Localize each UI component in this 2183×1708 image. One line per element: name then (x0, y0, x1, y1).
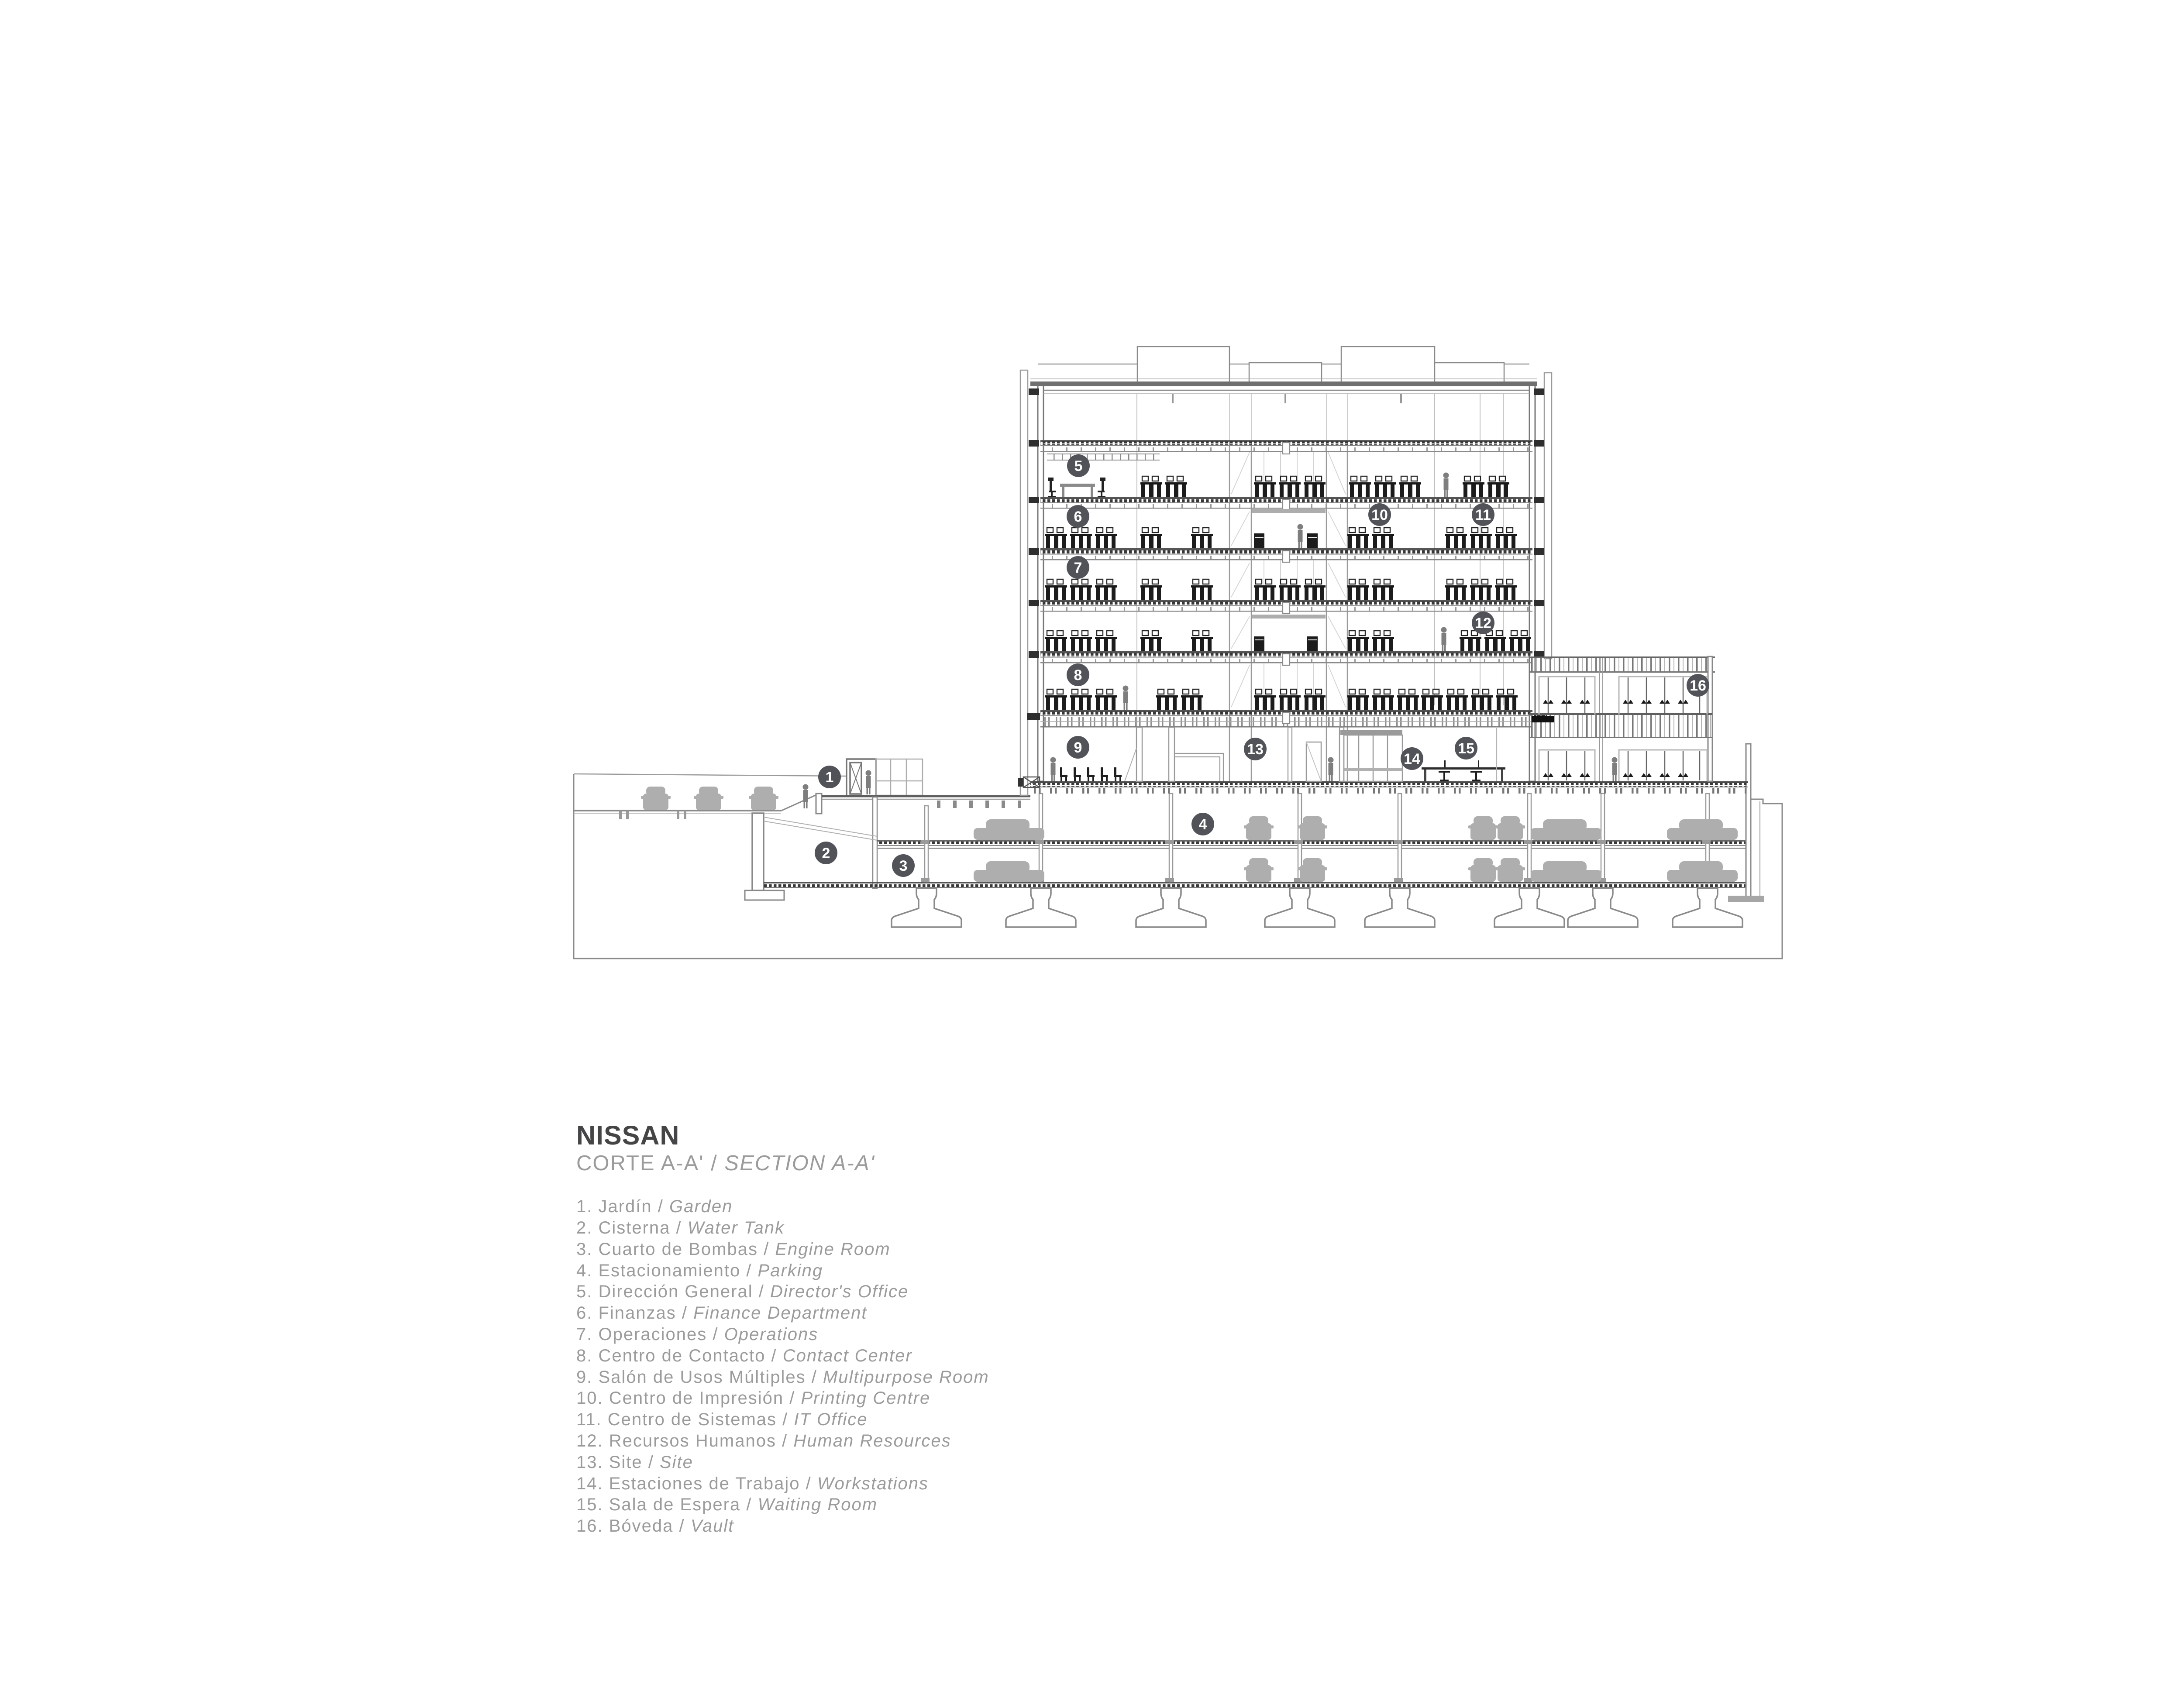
svg-text:4. Estacionamiento / Parking: 4. Estacionamiento / Parking (576, 1261, 823, 1280)
svg-text:11: 11 (1475, 507, 1491, 523)
svg-text:5. Dirección General / Directo: 5. Dirección General / Director's Office (576, 1282, 909, 1301)
svg-text:13: 13 (1247, 741, 1264, 758)
svg-text:7: 7 (1074, 560, 1082, 576)
svg-text:8: 8 (1074, 667, 1082, 684)
svg-text:12: 12 (1475, 615, 1491, 632)
svg-text:13. Site / Site: 13. Site / Site (576, 1453, 693, 1472)
svg-text:6: 6 (1074, 509, 1082, 525)
svg-text:4: 4 (1199, 816, 1207, 833)
svg-text:12. Recursos Humanos / Human R: 12. Recursos Humanos / Human Resources (576, 1431, 951, 1450)
svg-text:NISSAN: NISSAN (576, 1120, 679, 1150)
svg-text:2. Cisterna / Water Tank: 2. Cisterna / Water Tank (576, 1218, 785, 1237)
svg-text:15. Sala de Espera / Waiting R: 15. Sala de Espera / Waiting Room (576, 1495, 878, 1514)
svg-text:3. Cuarto de Bombas / Engine R: 3. Cuarto de Bombas / Engine Room (576, 1240, 891, 1259)
svg-text:9. Salón de Usos Múltiples / M: 9. Salón de Usos Múltiples / Multipurpos… (576, 1368, 989, 1387)
svg-text:3: 3 (899, 858, 908, 874)
svg-text:2: 2 (822, 845, 830, 862)
svg-text:10. Centro de Impresión / Prin: 10. Centro de Impresión / Printing Centr… (576, 1388, 930, 1408)
svg-text:1. Jardín / Garden: 1. Jardín / Garden (576, 1197, 733, 1216)
svg-text:5: 5 (1074, 458, 1083, 474)
svg-text:1: 1 (826, 769, 834, 786)
svg-text:16: 16 (1690, 677, 1706, 694)
svg-text:14. Estaciones de Trabajo / Wo: 14. Estaciones de Trabajo / Workstations (576, 1474, 929, 1493)
svg-text:9: 9 (1074, 739, 1082, 756)
svg-text:8. Centro de Contacto / Contac: 8. Centro de Contacto / Contact Center (576, 1346, 912, 1365)
svg-text:CORTE A-A' / SECTION A-A': CORTE A-A' / SECTION A-A' (576, 1151, 875, 1175)
svg-text:14: 14 (1404, 751, 1420, 767)
svg-text:16. Bóveda / Vault: 16. Bóveda / Vault (576, 1516, 734, 1536)
svg-text:6. Finanzas / Finance Departme: 6. Finanzas / Finance Department (576, 1303, 868, 1323)
svg-text:10: 10 (1371, 507, 1388, 523)
svg-text:11. Centro de Sistemas / IT Of: 11. Centro de Sistemas / IT Office (576, 1410, 868, 1429)
svg-text:15: 15 (1458, 740, 1474, 757)
svg-text:7. Operaciones / Operations: 7. Operaciones / Operations (576, 1325, 818, 1344)
